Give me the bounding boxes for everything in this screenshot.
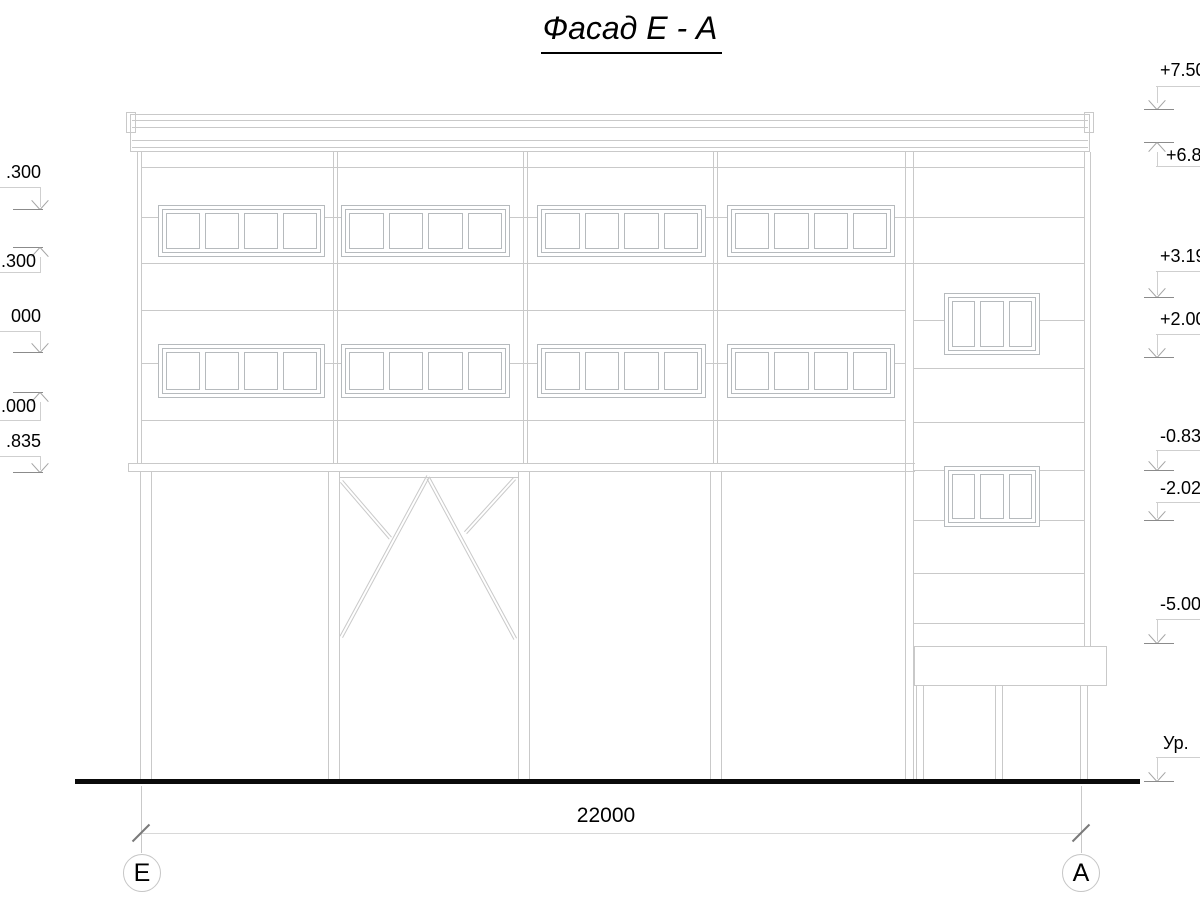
brace-diagonal	[464, 477, 516, 534]
bay-divider	[713, 152, 714, 463]
leader-drop	[1157, 152, 1158, 166]
dimension-line	[141, 833, 1081, 834]
window-pane	[545, 213, 580, 249]
level-tick	[1144, 520, 1174, 521]
window-pane	[1009, 474, 1032, 519]
panel-joint	[141, 310, 905, 311]
window-pane	[166, 213, 200, 249]
facade-left-edge	[141, 152, 142, 463]
level-tick	[13, 352, 43, 353]
window-pane	[952, 474, 975, 519]
leader-line	[1156, 166, 1200, 167]
extension-line	[1081, 786, 1082, 853]
foundation-leg	[916, 686, 924, 781]
window-pane	[853, 213, 887, 249]
roof-band-line	[132, 127, 1088, 128]
bay-divider	[717, 152, 718, 463]
leader-line	[1156, 86, 1200, 87]
level-tick	[13, 472, 43, 473]
window-pane	[952, 301, 975, 347]
small-window	[944, 293, 1040, 355]
small-window	[944, 466, 1040, 527]
arrow-down-icon	[32, 343, 48, 352]
window-pane	[624, 213, 659, 249]
arrow-down-icon	[1149, 100, 1165, 109]
panel-joint	[141, 420, 905, 421]
window-pane	[1009, 301, 1032, 347]
leader-line	[1156, 271, 1200, 272]
leader-drop	[40, 402, 41, 420]
window-pane	[166, 352, 200, 390]
roof-end-cap-left	[126, 112, 136, 133]
axis-bubble-a: А	[1062, 854, 1100, 892]
ribbon-window	[341, 205, 510, 257]
ribbon-window	[341, 344, 510, 398]
arrow-up-icon	[1149, 143, 1165, 152]
facade-drawing: Фасад Е - А	[0, 0, 1200, 900]
leader-line	[1156, 450, 1200, 451]
elevation-label: .835	[0, 431, 41, 451]
window-pane	[428, 352, 463, 390]
ribbon-window	[727, 205, 895, 257]
axis-bubble-e: Е	[123, 854, 161, 892]
leader-line	[0, 272, 41, 273]
level-tick	[1144, 297, 1174, 298]
window-pane	[585, 352, 620, 390]
level-tick	[13, 209, 43, 210]
window-pane	[585, 213, 620, 249]
arrow-down-icon	[1149, 288, 1165, 297]
right-bay-left-edge	[905, 152, 906, 781]
window-pane	[980, 474, 1003, 519]
window-frame	[541, 209, 702, 253]
level-tick	[1144, 357, 1174, 358]
column	[328, 471, 340, 781]
elevation-label: -2.02	[1160, 478, 1200, 498]
elevation-label: +3.19	[1160, 246, 1200, 266]
dimension-label: 22000	[556, 804, 656, 828]
title-underline	[541, 52, 722, 54]
bay-divider	[527, 152, 528, 463]
window-pane	[389, 213, 424, 249]
panel-joint	[913, 573, 1084, 574]
elevation-label: 000	[0, 306, 41, 326]
roof-band-line	[132, 140, 1088, 141]
window-pane	[244, 352, 278, 390]
leader-line	[0, 456, 41, 457]
window-pane	[283, 213, 317, 249]
facade-right-edge	[1090, 152, 1091, 647]
elevation-label: -0.83	[1160, 426, 1200, 446]
panel-joint	[141, 167, 1084, 168]
brace-diagonal	[426, 477, 517, 640]
window-pane	[664, 213, 699, 249]
level-tick	[1144, 470, 1174, 471]
foundation-leg	[1080, 686, 1088, 781]
window-frame	[162, 348, 321, 394]
ribbon-window	[727, 344, 895, 398]
panel-joint	[913, 623, 1084, 624]
window-frame	[731, 209, 891, 253]
arrow-down-icon	[1149, 461, 1165, 470]
window-pane	[774, 352, 808, 390]
elevation-label: -5.00	[1160, 594, 1200, 614]
facade-left-edge	[137, 152, 138, 463]
arrow-down-icon	[1149, 634, 1165, 643]
extension-line	[141, 786, 142, 853]
leader-line	[0, 331, 41, 332]
bay-divider	[523, 152, 524, 463]
leader-line	[1156, 334, 1200, 335]
leader-line	[1156, 757, 1200, 758]
level-tick	[1144, 109, 1174, 110]
window-pane	[735, 213, 769, 249]
window-pane	[624, 352, 659, 390]
window-pane	[389, 352, 424, 390]
slab-end	[128, 463, 129, 472]
ground-line	[75, 779, 1140, 784]
elevation-label: +7.50	[1160, 60, 1200, 80]
window-pane	[205, 352, 239, 390]
window-pane	[244, 213, 278, 249]
roof-band-line	[132, 120, 1088, 121]
window-frame	[345, 209, 506, 253]
window-pane	[283, 352, 317, 390]
window-pane	[349, 213, 384, 249]
window-frame	[948, 470, 1036, 523]
arrow-down-icon	[1149, 511, 1165, 520]
ribbon-window	[537, 344, 706, 398]
panel-joint	[913, 368, 1084, 369]
foundation-leg	[995, 686, 1003, 781]
roof-band-line	[132, 147, 1088, 148]
column	[518, 471, 530, 781]
column	[140, 471, 152, 781]
ribbon-window	[158, 205, 325, 257]
leader-line	[0, 187, 41, 188]
leader-line	[1156, 619, 1200, 620]
window-pane	[664, 352, 699, 390]
arrow-down-icon	[32, 200, 48, 209]
window-frame	[541, 348, 702, 394]
level-tick	[1144, 643, 1174, 644]
facade-right-edge	[1084, 152, 1085, 647]
window-frame	[345, 348, 506, 394]
leader-drop	[40, 257, 41, 272]
foundation-block	[914, 646, 1107, 686]
brace-diagonal	[340, 480, 392, 539]
arrow-down-icon	[1149, 348, 1165, 357]
elevation-label: Ур.	[1163, 733, 1189, 753]
leader-line	[0, 420, 41, 421]
ribbon-window	[537, 205, 706, 257]
level-tick	[1144, 781, 1174, 782]
window-pane	[545, 352, 580, 390]
slab-line	[128, 463, 915, 464]
elevation-label: .300	[0, 162, 41, 182]
leader-line	[1156, 502, 1200, 503]
window-frame	[162, 209, 321, 253]
window-frame	[731, 348, 891, 394]
window-pane	[814, 213, 848, 249]
roof-end-cap-right	[1084, 112, 1094, 133]
bay-divider	[337, 152, 338, 463]
panel-joint	[141, 263, 1084, 264]
arrow-down-icon	[1149, 772, 1165, 781]
window-pane	[349, 352, 384, 390]
elevation-label: .300	[0, 251, 36, 271]
brace-diagonal	[339, 475, 430, 638]
ribbon-window	[158, 344, 325, 398]
window-pane	[774, 213, 808, 249]
bay-divider	[333, 152, 334, 463]
drawing-title: Фасад Е - А	[450, 10, 810, 47]
window-pane	[468, 213, 503, 249]
window-pane	[853, 352, 887, 390]
window-pane	[468, 352, 503, 390]
elevation-label: +6.8	[1166, 145, 1200, 165]
column	[710, 471, 722, 781]
window-pane	[735, 352, 769, 390]
window-pane	[428, 213, 463, 249]
window-pane	[980, 301, 1003, 347]
right-bay-left-edge	[913, 152, 914, 781]
arrow-down-icon	[32, 463, 48, 472]
panel-joint	[913, 422, 1084, 423]
window-pane	[205, 213, 239, 249]
window-frame	[948, 297, 1036, 351]
window-pane	[814, 352, 848, 390]
elevation-label: .000	[0, 396, 36, 416]
elevation-label: +2.00	[1160, 309, 1200, 329]
